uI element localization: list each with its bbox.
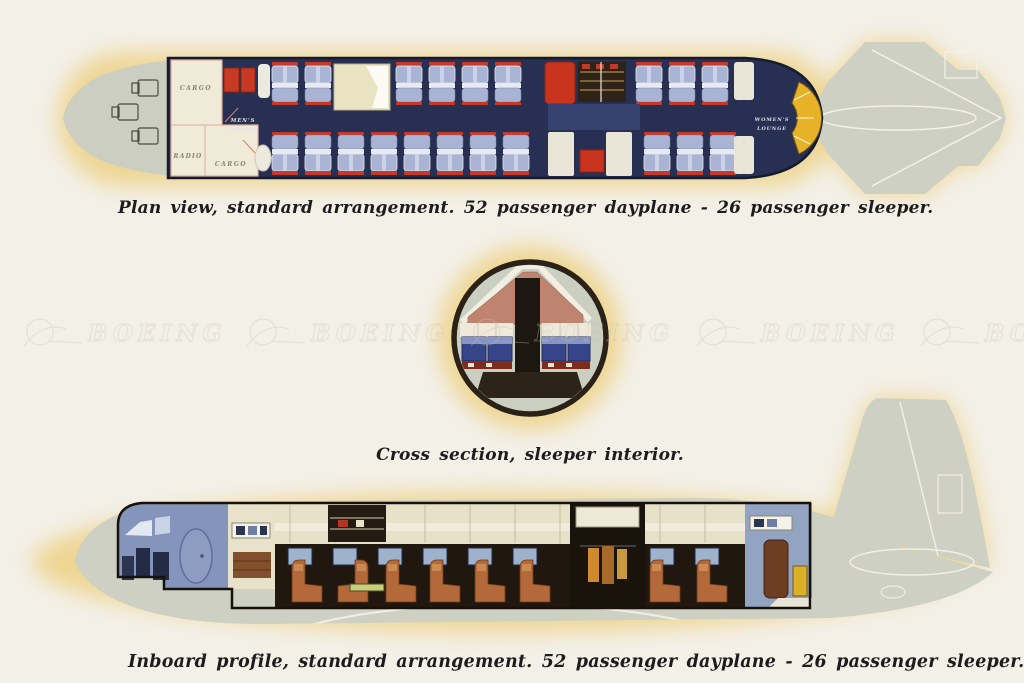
cabin-seating <box>275 544 745 608</box>
cabin-table <box>350 584 384 591</box>
galley-and-entry <box>545 62 640 176</box>
entry-vestibule <box>548 104 640 130</box>
rear-lounge <box>745 503 812 608</box>
overhead-berth-band <box>275 503 745 544</box>
plan-seats-bottom-row <box>272 132 736 175</box>
coat-closet <box>570 503 645 608</box>
radio-label: RADIO <box>173 153 203 160</box>
cargo-hold <box>475 372 585 398</box>
cargo-lower-label: CARGO <box>215 161 247 168</box>
womens-lounge-label: WOMEN'S <box>755 117 790 123</box>
crew-compartment <box>228 503 275 589</box>
inboard-profile-figure <box>32 398 993 683</box>
pilot-seat-silhouette <box>136 548 150 578</box>
inboard-profile-caption: Inboard profile, standard arrangement. 5… <box>128 652 1024 672</box>
plan-view-figure: CARGO RADIO CARGO MEN'S LOUNGE <box>58 42 1006 194</box>
plan-seats-top-row <box>272 62 728 110</box>
cockpit-door <box>180 529 212 583</box>
cross-section-caption: Cross section, sleeper interior. <box>330 445 730 465</box>
plan-tail-empennage <box>807 42 1006 194</box>
womens-lounge-label: LOUNGE <box>756 126 787 132</box>
mens-lounge-label: LOUNGE <box>226 127 259 133</box>
cargo-forward-label: CARGO <box>180 85 212 92</box>
plan-view-caption: Plan view, standard arrangement. 52 pass… <box>118 198 933 218</box>
brochure-page: BOEING <box>0 0 1024 683</box>
illustration-canvas: BOEING <box>0 0 1024 683</box>
lounge-door <box>764 540 788 598</box>
lounge-chair <box>793 566 807 596</box>
mens-lounge-label: MEN'S <box>230 118 256 124</box>
